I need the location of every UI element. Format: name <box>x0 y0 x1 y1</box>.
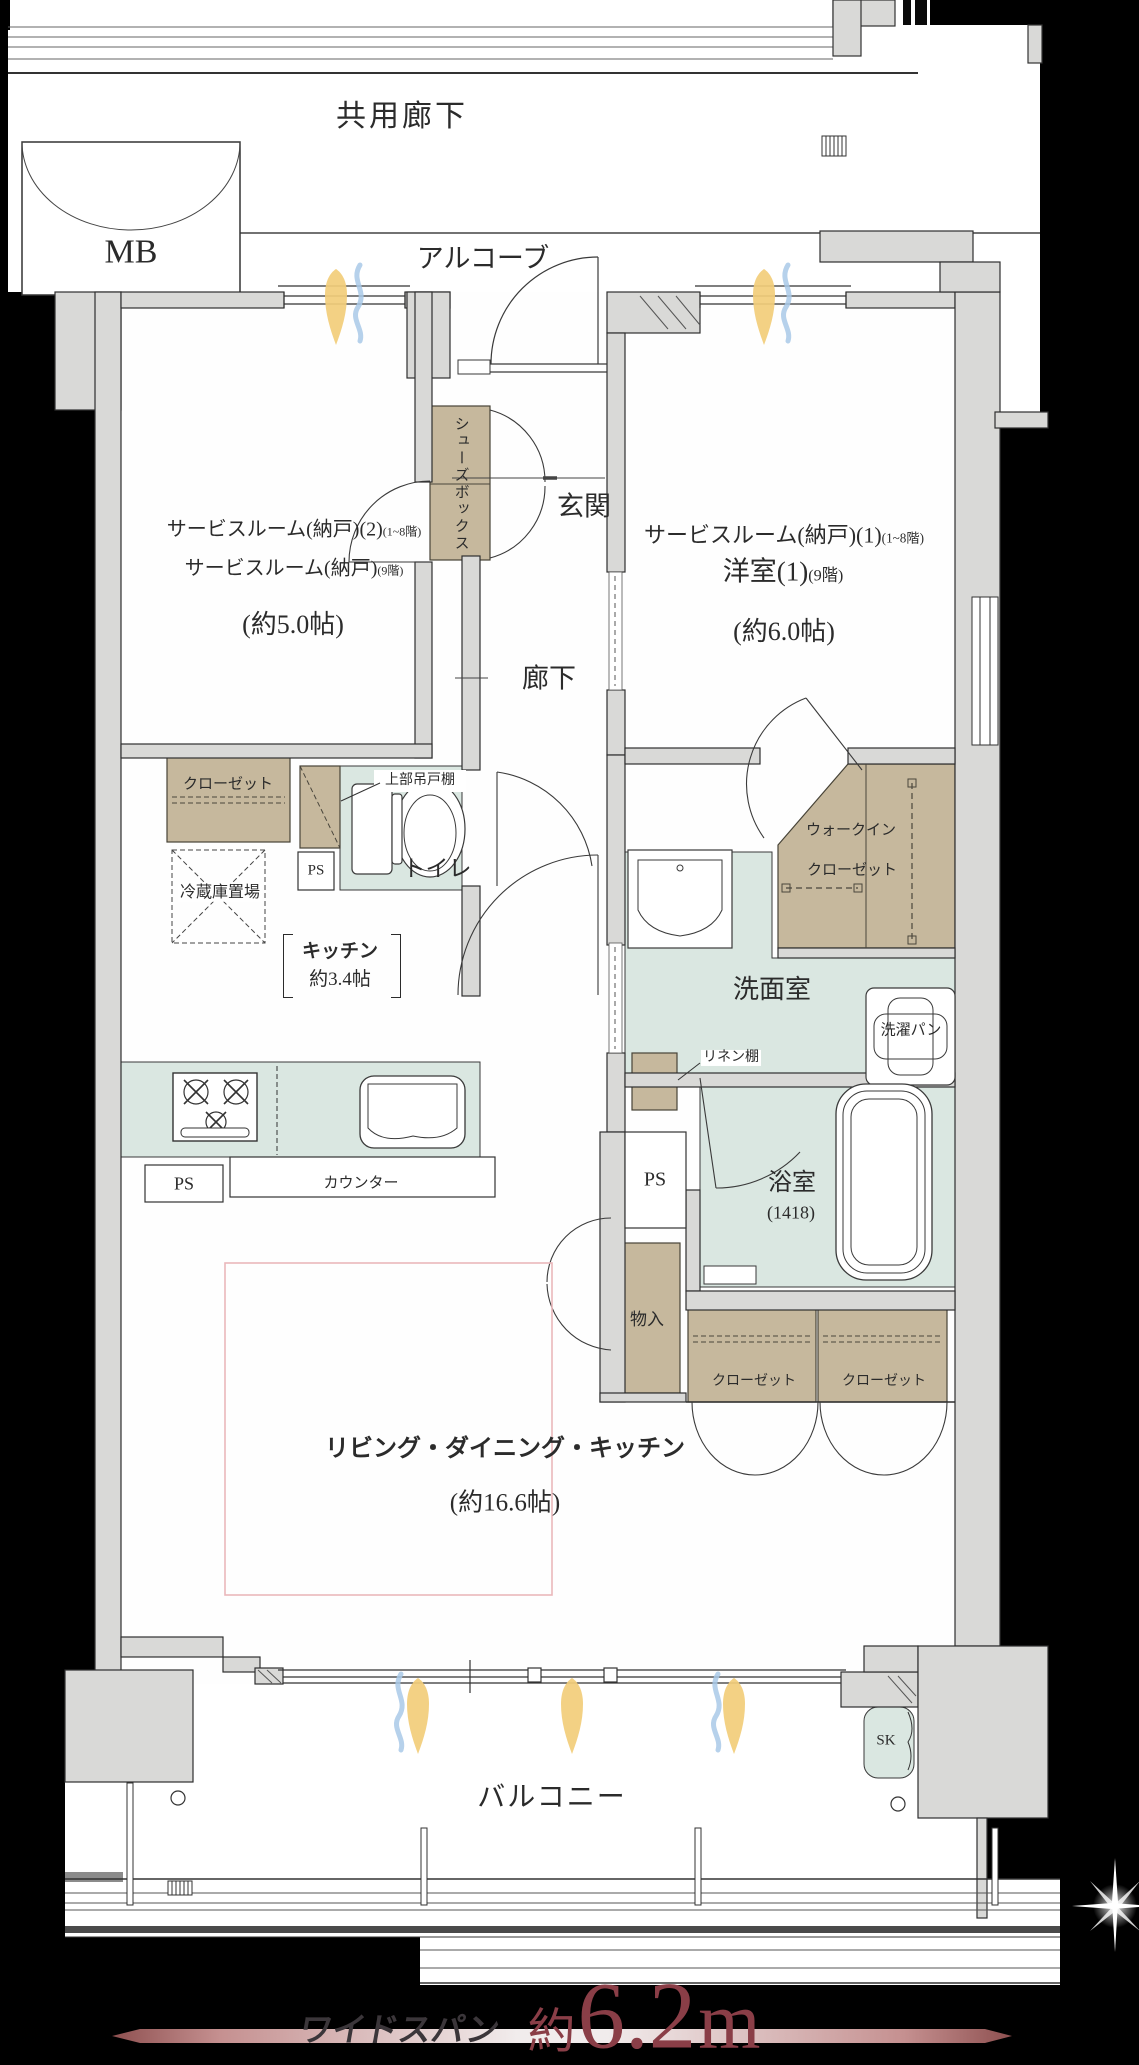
ps-label-1: PS <box>308 862 325 879</box>
service-room-2-line1: サービスルーム(納戸)(2)(1~8階) <box>167 519 422 542</box>
span-dimension-value: 約6.2m <box>528 1961 761 2065</box>
entrance-label: 玄関 <box>557 491 611 522</box>
ldk-size-label: (約16.6帖) <box>450 1490 560 1519</box>
alcove-label: アルコーブ <box>417 243 550 274</box>
closet-2-label: クローゼット <box>842 1374 926 1390</box>
slop-sink-label: SK <box>876 1732 895 1749</box>
window-side-right <box>972 597 998 745</box>
walk-in-closet-label-2: クローゼット <box>807 862 897 879</box>
toilet-label: トイレ <box>403 856 472 882</box>
meter-box <box>22 142 240 295</box>
closet-left-label: クローゼット <box>183 776 273 793</box>
ldk-label: リビング・ダイニング・キッチン <box>325 1436 685 1464</box>
kitchen-name-label: キッチン <box>302 941 378 963</box>
counter-label: カウンター <box>323 1175 398 1192</box>
slab-grate-icon <box>168 1881 192 1895</box>
storage-compartment-label: 物入 <box>630 1310 664 1330</box>
ps-label-3: PS <box>174 1174 194 1195</box>
floor-plan-graphics <box>0 0 1139 2065</box>
service-room-1-line1: サービスルーム(納戸)(1)(1~8階) <box>644 522 924 547</box>
kitchen-size-label: 約3.4帖 <box>309 969 371 991</box>
sparkle-icon <box>1072 1858 1139 1952</box>
washroom-label: 洗面室 <box>733 975 811 1005</box>
service-room-2-size: (約5.0帖) <box>242 610 344 640</box>
shoes-box-label: シューズボックス <box>451 416 468 552</box>
bathroom-label: 浴室 <box>768 1170 816 1198</box>
meter-box-label: MB <box>105 232 158 271</box>
service-room-1-line2: 洋室(1)(9階) <box>723 556 844 587</box>
hallway-label: 廊下 <box>522 663 576 694</box>
vanity-sink-icon <box>628 850 732 948</box>
shared-corridor-label: 共用廊下 <box>336 100 468 135</box>
upper-cabinet-label: 上部吊戸棚 <box>385 773 455 789</box>
service-room-1-size: (約6.0帖) <box>733 617 835 647</box>
bathroom-size-label: (1418) <box>767 1203 815 1224</box>
span-dimension-label: ワイドスパン <box>296 2013 502 2051</box>
ps-label-2: PS <box>644 1169 666 1192</box>
laundry-pan-label: 洗濯パン <box>881 1022 942 1039</box>
service-room-2-line2: サービスルーム(納戸)(9階) <box>185 558 404 581</box>
corridor-grate-icon <box>822 136 846 156</box>
kitchen-sink-icon <box>360 1076 465 1148</box>
linen-shelf-label: リネン棚 <box>701 1050 761 1066</box>
balcony-label: バルコニー <box>477 1782 626 1814</box>
refrigerator-space-label: 冷蔵庫置場 <box>178 884 262 902</box>
corridor-black-bars <box>903 0 927 25</box>
floor-plan-page: 共用廊下 MB アルコーブ サービスルーム(納戸)(2)(1~8階) サービスル… <box>0 0 1139 2065</box>
walk-in-closet-label-1: ウォークイン <box>806 822 896 839</box>
closet-1-label: クローゼット <box>712 1374 796 1390</box>
bathtub-icon <box>836 1084 932 1280</box>
